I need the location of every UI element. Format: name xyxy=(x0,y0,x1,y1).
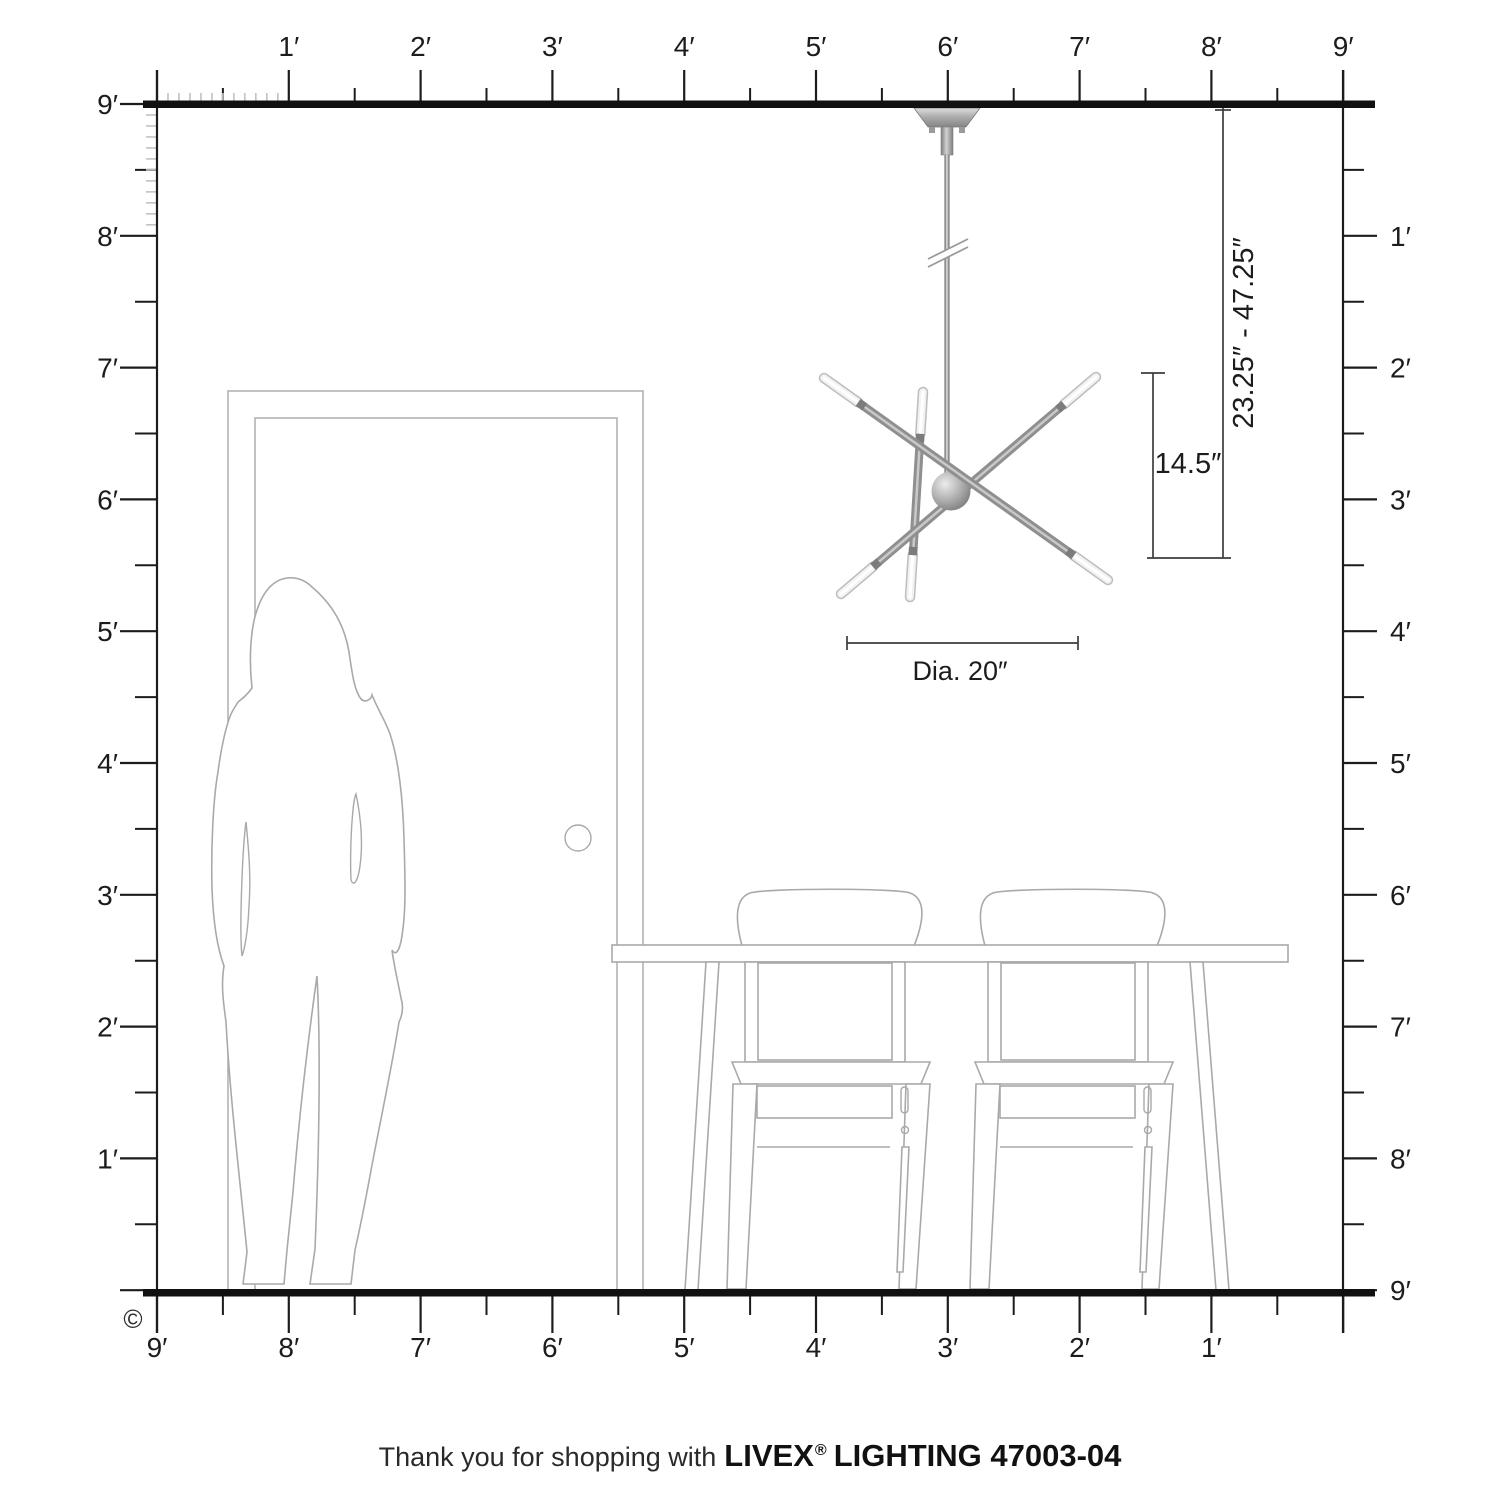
ruler-label: 5′ xyxy=(97,616,118,647)
ruler-label: 2′ xyxy=(1390,353,1411,384)
ruler-label: 4′ xyxy=(97,748,118,779)
diameter-dimension: Dia. 20″ xyxy=(847,636,1078,686)
ruler-label: 7′ xyxy=(1390,1012,1411,1043)
ruler-label: 8′ xyxy=(97,221,118,252)
ruler-label: 2′ xyxy=(1069,1332,1090,1363)
ruler-label: 6′ xyxy=(97,484,118,515)
floor-line xyxy=(143,1289,1375,1297)
ruler-label: 9′ xyxy=(1333,31,1354,62)
dining-table xyxy=(612,945,1288,1290)
ruler-label: 3′ xyxy=(1390,484,1411,515)
chair-seat xyxy=(732,1062,930,1084)
ruler-label: 1′ xyxy=(1390,221,1411,252)
ruler-label: 1′ xyxy=(97,1143,118,1174)
chair xyxy=(970,962,1173,1289)
ruler-label: 9′ xyxy=(1390,1275,1411,1306)
ruler-label: 2′ xyxy=(97,1012,118,1043)
ruler-label: 7′ xyxy=(1069,31,1090,62)
ruler-label: 4′ xyxy=(806,1332,827,1363)
chair-backrest xyxy=(980,889,1165,946)
chair-back-opening xyxy=(758,963,892,1060)
chair-backrest xyxy=(737,889,922,946)
ruler-label: 3′ xyxy=(97,880,118,911)
footer-prefix: Thank you for shopping with xyxy=(379,1442,717,1472)
ruler-label: 6′ xyxy=(1390,880,1411,911)
ruler-label: 8′ xyxy=(1201,31,1222,62)
ruler-label: 3′ xyxy=(937,1332,958,1363)
ruler-label: 2′ xyxy=(410,31,431,62)
footer-model-number: LIGHTING 47003-04 xyxy=(834,1438,1122,1473)
ruler-label: 5′ xyxy=(1390,748,1411,779)
pendant-light-fixture xyxy=(824,108,1108,597)
ruler-label: 6′ xyxy=(542,1332,563,1363)
ruler-label: 3′ xyxy=(542,31,563,62)
ceiling-line xyxy=(143,101,1375,109)
table-top xyxy=(612,945,1288,962)
canopy-screw xyxy=(959,127,965,133)
ruler-label: 5′ xyxy=(674,1332,695,1363)
stem-collar xyxy=(941,127,953,155)
chair-front-left-leg xyxy=(727,1084,757,1289)
ruler-label: 9′ xyxy=(147,1332,168,1363)
diameter-label: Dia. 20″ xyxy=(912,656,1008,686)
ruler-label: 5′ xyxy=(806,31,827,62)
scale-diagram: 23.25″ - 47.25″ 14.5″ Dia. 20″ 1′2′3′4′5… xyxy=(0,0,1500,1500)
ruler-label: 6′ xyxy=(937,31,958,62)
fixture-height-label: 14.5″ xyxy=(1155,448,1222,480)
chair xyxy=(727,962,930,1289)
ruler-label: 1′ xyxy=(1201,1332,1222,1363)
chair-backrests xyxy=(737,889,1165,946)
ruler-label: 7′ xyxy=(97,353,118,384)
ruler-label: 7′ xyxy=(410,1332,431,1363)
ruler-label: 9′ xyxy=(97,89,118,120)
woman-silhouette xyxy=(212,578,405,1284)
ruler-label: 8′ xyxy=(278,1332,299,1363)
door-knob xyxy=(565,825,591,851)
table-left-leg xyxy=(685,962,719,1290)
drop-range-label: 23.25″ - 47.25″ xyxy=(1228,237,1260,428)
fixture-height-dimension: 14.5″ xyxy=(1141,373,1221,558)
footer-text: Thank you for shopping withLIVEX®LIGHTIN… xyxy=(379,1438,1123,1473)
registered-mark-icon: ® xyxy=(815,1442,827,1459)
canopy-screw xyxy=(929,127,935,133)
ceiling-canopy xyxy=(914,108,980,127)
footer-brand: LIVEX xyxy=(724,1438,814,1473)
ruler-label: 4′ xyxy=(1390,616,1411,647)
drop-range-dimension: 23.25″ - 47.25″ xyxy=(1147,108,1260,558)
chair-apron xyxy=(757,1086,892,1118)
table-right-leg xyxy=(1190,962,1229,1290)
downrod-highlight xyxy=(946,155,948,477)
copyright-symbol: © xyxy=(123,1304,142,1334)
ruler-label: 4′ xyxy=(674,31,695,62)
ruler-label: 1′ xyxy=(278,31,299,62)
scale-diagram-page: 23.25″ - 47.25″ 14.5″ Dia. 20″ 1′2′3′4′5… xyxy=(0,0,1500,1500)
fixture-arm xyxy=(910,392,923,597)
ruler-label: 8′ xyxy=(1390,1143,1411,1174)
